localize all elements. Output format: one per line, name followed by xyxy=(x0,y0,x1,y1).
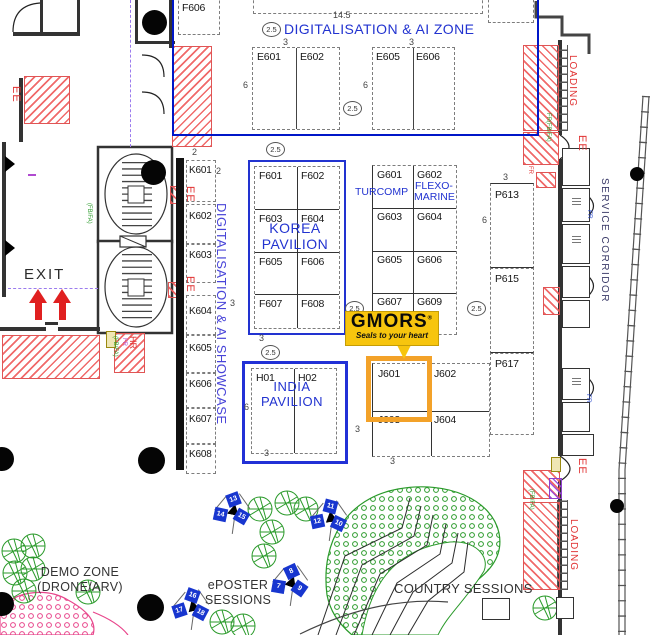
booth-label: K603 xyxy=(189,250,212,261)
zone-title-showcase: DIGITALISATION & AI SHOWCASE xyxy=(214,203,229,425)
korea-pavilion-title-1: KOREA xyxy=(248,220,342,236)
fr-label: FR xyxy=(585,394,592,403)
dim-3: 3 xyxy=(390,456,395,466)
service-room xyxy=(562,402,590,432)
demo-zone-line1: DEMO ZONE xyxy=(20,565,140,580)
dim-3: 3 xyxy=(230,298,235,308)
booth-label: K601 xyxy=(189,165,212,176)
hatch-area xyxy=(523,132,559,165)
booth-label: P613 xyxy=(495,189,519,201)
exit-arrow-icon xyxy=(29,289,47,320)
dim-circle: 2.5 xyxy=(266,142,285,157)
divider xyxy=(255,209,339,210)
korea-pavilion-title-2: PAVILION xyxy=(248,236,342,252)
hatch-area xyxy=(543,287,560,315)
booth-g601: G601 xyxy=(377,169,402,181)
loading-label-top: LOADING xyxy=(567,55,578,107)
dim-label: 2.5 xyxy=(347,104,357,113)
india-pavilion: H01 H02 xyxy=(242,361,348,464)
registered-mark: ® xyxy=(428,316,433,322)
gmors-logo-text: GMORS® xyxy=(346,312,438,332)
exhibition-floor-plan: F606 14.5 2.5 DIGITALISATION & AI ZONE 3… xyxy=(0,0,653,635)
demo-zone-label: DEMO ZONE (DRONE/ARV) xyxy=(20,565,140,595)
booth-e606: E606 xyxy=(416,51,440,63)
wall xyxy=(176,158,184,470)
zone-title-ai: DIGITALISATION & AI ZONE xyxy=(284,21,474,37)
dim-label: 2.5 xyxy=(270,145,280,154)
stand-number: 17 xyxy=(171,602,187,618)
eposter-line2: SESSIONS xyxy=(202,593,274,608)
fbfa-label: (FB/FA) xyxy=(86,203,92,224)
booth-k602: K602 xyxy=(186,204,216,244)
booth-k608: K608 xyxy=(186,444,216,474)
column xyxy=(142,10,167,35)
column xyxy=(141,160,166,185)
divider xyxy=(296,48,297,129)
wall xyxy=(77,0,80,36)
exhibitor-turcomp: TURCOMP xyxy=(355,186,408,198)
hr-label: HR xyxy=(128,336,138,349)
tv-mark xyxy=(28,174,36,176)
column xyxy=(138,447,165,474)
booth-block-e601-e602: E601 E602 xyxy=(252,47,340,130)
ee-label: EE xyxy=(576,458,588,475)
dashed-guide xyxy=(130,0,131,147)
dim-3: 3 xyxy=(409,37,414,47)
booth-g604: G604 xyxy=(417,211,442,223)
gmors-tagline: Seals to your heart xyxy=(346,331,438,340)
booth-e601: E601 xyxy=(257,51,281,63)
hatch-area xyxy=(172,46,212,147)
divider xyxy=(373,208,456,209)
dim-3: 3 xyxy=(264,448,269,458)
wall xyxy=(135,0,138,44)
fr-label: FR xyxy=(586,210,593,219)
booth-k607: K607 xyxy=(186,408,216,444)
booth-k604: K604 xyxy=(186,295,216,335)
eposter-label: ePOSTER SESSIONS xyxy=(202,578,274,608)
booth-p617: P617 xyxy=(490,352,534,435)
hatch-area xyxy=(523,45,559,131)
column xyxy=(610,499,624,513)
hatch-area xyxy=(24,76,70,124)
booth-g609: G609 xyxy=(417,296,442,308)
dim-label: 2.5 xyxy=(471,304,481,313)
dim-6: 6 xyxy=(244,402,249,412)
dim-3: 3 xyxy=(355,424,360,434)
booth-block-partial xyxy=(253,0,483,14)
booth-j604: J604 xyxy=(434,414,456,426)
exit-arrow-icon xyxy=(53,289,71,320)
booth-p613: P613 xyxy=(490,183,534,269)
dim-2: 2 xyxy=(192,147,197,157)
booth-f602: F602 xyxy=(301,170,324,182)
booth-block-e605-e606: E605 E606 xyxy=(372,47,455,130)
door-threshold xyxy=(45,322,58,325)
divider xyxy=(413,48,414,129)
dim-3: 3 xyxy=(503,172,508,182)
booth-label: K607 xyxy=(189,414,212,425)
booth-f608: F608 xyxy=(301,298,324,310)
column xyxy=(630,167,644,181)
booth-label: K604 xyxy=(189,306,212,317)
service-room xyxy=(482,598,510,620)
booth-k605: K605 xyxy=(186,335,216,373)
wall xyxy=(13,32,79,36)
eposter-stand-marker: 13 14 15 xyxy=(216,494,252,530)
frfbfa-label: FR(FB/FA) xyxy=(545,113,551,142)
booth-label: P617 xyxy=(495,358,519,370)
eposter-stand-marker: 8 7 9 xyxy=(274,566,310,602)
eposter-stand-marker: 16 17 18 xyxy=(175,590,211,626)
booth-p615: P615 xyxy=(490,267,534,354)
wall xyxy=(0,327,46,331)
dim-6: 6 xyxy=(482,215,487,225)
booth-e602: E602 xyxy=(300,51,324,63)
divider xyxy=(255,252,339,253)
ee-label: EE xyxy=(10,86,22,103)
service-room xyxy=(562,266,590,298)
hatch-area xyxy=(523,502,560,590)
dim-circle: 2.5 xyxy=(343,101,362,116)
booth-f601: F601 xyxy=(259,170,282,182)
wall xyxy=(40,0,43,32)
dim-circle: 2.5 xyxy=(467,301,486,316)
divider xyxy=(373,251,456,252)
booth-e605: E605 xyxy=(376,51,400,63)
ee-label: EE xyxy=(576,135,588,152)
booth-g603: G603 xyxy=(377,211,402,223)
booth-g607: G607 xyxy=(377,296,402,308)
exit-label: EXIT xyxy=(24,266,65,283)
fbfa-label: (FB/FA) xyxy=(528,489,534,510)
demo-zone-line2: (DRONE/ARV) xyxy=(20,580,140,595)
dim-circle: 2.5 xyxy=(261,345,280,360)
booth-label: P615 xyxy=(495,273,519,285)
loading-label-bottom: LOADING xyxy=(568,519,579,571)
service-room xyxy=(556,597,574,619)
column xyxy=(137,594,164,621)
service-room xyxy=(562,434,594,456)
india-pavilion-title-2: PAVILION xyxy=(242,394,342,409)
divider xyxy=(255,294,339,295)
dim-label: 2.5 xyxy=(266,25,276,34)
service-room xyxy=(562,224,590,264)
fbfa-label: (FB/FA) xyxy=(112,336,118,357)
dim-circle: 2.5 xyxy=(262,22,281,37)
eposter-line1: ePOSTER xyxy=(202,578,274,593)
hatch-area xyxy=(536,172,556,188)
dim-14-5: 14.5 xyxy=(333,10,351,20)
service-room xyxy=(562,300,590,328)
service-room xyxy=(562,148,590,186)
booth-f605: F605 xyxy=(259,256,282,268)
divider xyxy=(373,293,456,294)
wall xyxy=(58,327,100,331)
service-corridor-label: SERVICE CORRIDOR xyxy=(599,178,610,303)
booth-f606-partial: F606 xyxy=(178,0,220,35)
stand-number: 7 xyxy=(271,579,286,594)
stand-number: 11 xyxy=(323,499,339,515)
booth-g605: G605 xyxy=(377,254,402,266)
gmors-logo: GMORS® Seals to your heart xyxy=(345,311,439,346)
booth-label: K608 xyxy=(189,449,212,460)
dim-3: 3 xyxy=(283,37,288,47)
hatch-area xyxy=(2,335,100,379)
eposter-stand-marker: 11 12 10 xyxy=(313,501,349,537)
dim-label: 2.5 xyxy=(265,348,275,357)
stand-number: 12 xyxy=(310,514,325,529)
booth-k606: K606 xyxy=(186,373,216,408)
booth-label: K605 xyxy=(189,343,212,354)
booth-j602: J602 xyxy=(434,368,456,380)
dim-3: 3 xyxy=(259,333,264,343)
stand-number: 14 xyxy=(213,507,228,522)
booth-label: K602 xyxy=(189,211,212,222)
fr-label: FR xyxy=(527,166,533,174)
exhibitor-flexo-2: MARINE xyxy=(414,191,455,203)
dim-6: 6 xyxy=(363,80,368,90)
zone-boundary xyxy=(172,134,539,136)
ee-label: EE xyxy=(184,186,196,203)
booth-f607: F607 xyxy=(259,298,282,310)
country-sessions-label: COUNTRY SESSIONS xyxy=(394,581,533,596)
zone-boundary xyxy=(172,0,174,135)
india-pavilion-title-1: INDIA xyxy=(242,379,342,394)
booth-label: K606 xyxy=(189,379,212,390)
booth-label: F606 xyxy=(182,2,205,14)
fr-label: FR xyxy=(121,338,127,346)
booth-block-partial xyxy=(488,0,534,23)
pink-hedge xyxy=(0,592,128,635)
db-box xyxy=(551,457,561,472)
booth-g606: G606 xyxy=(417,254,442,266)
booth-highlight-j601 xyxy=(366,356,432,422)
hatch-area-purple xyxy=(549,478,562,499)
dim-6: 6 xyxy=(243,80,248,90)
zone-boundary xyxy=(537,0,539,135)
ee-label: EE xyxy=(184,276,196,293)
dim-2: 2 xyxy=(216,166,221,176)
booth-f606: F606 xyxy=(301,256,324,268)
